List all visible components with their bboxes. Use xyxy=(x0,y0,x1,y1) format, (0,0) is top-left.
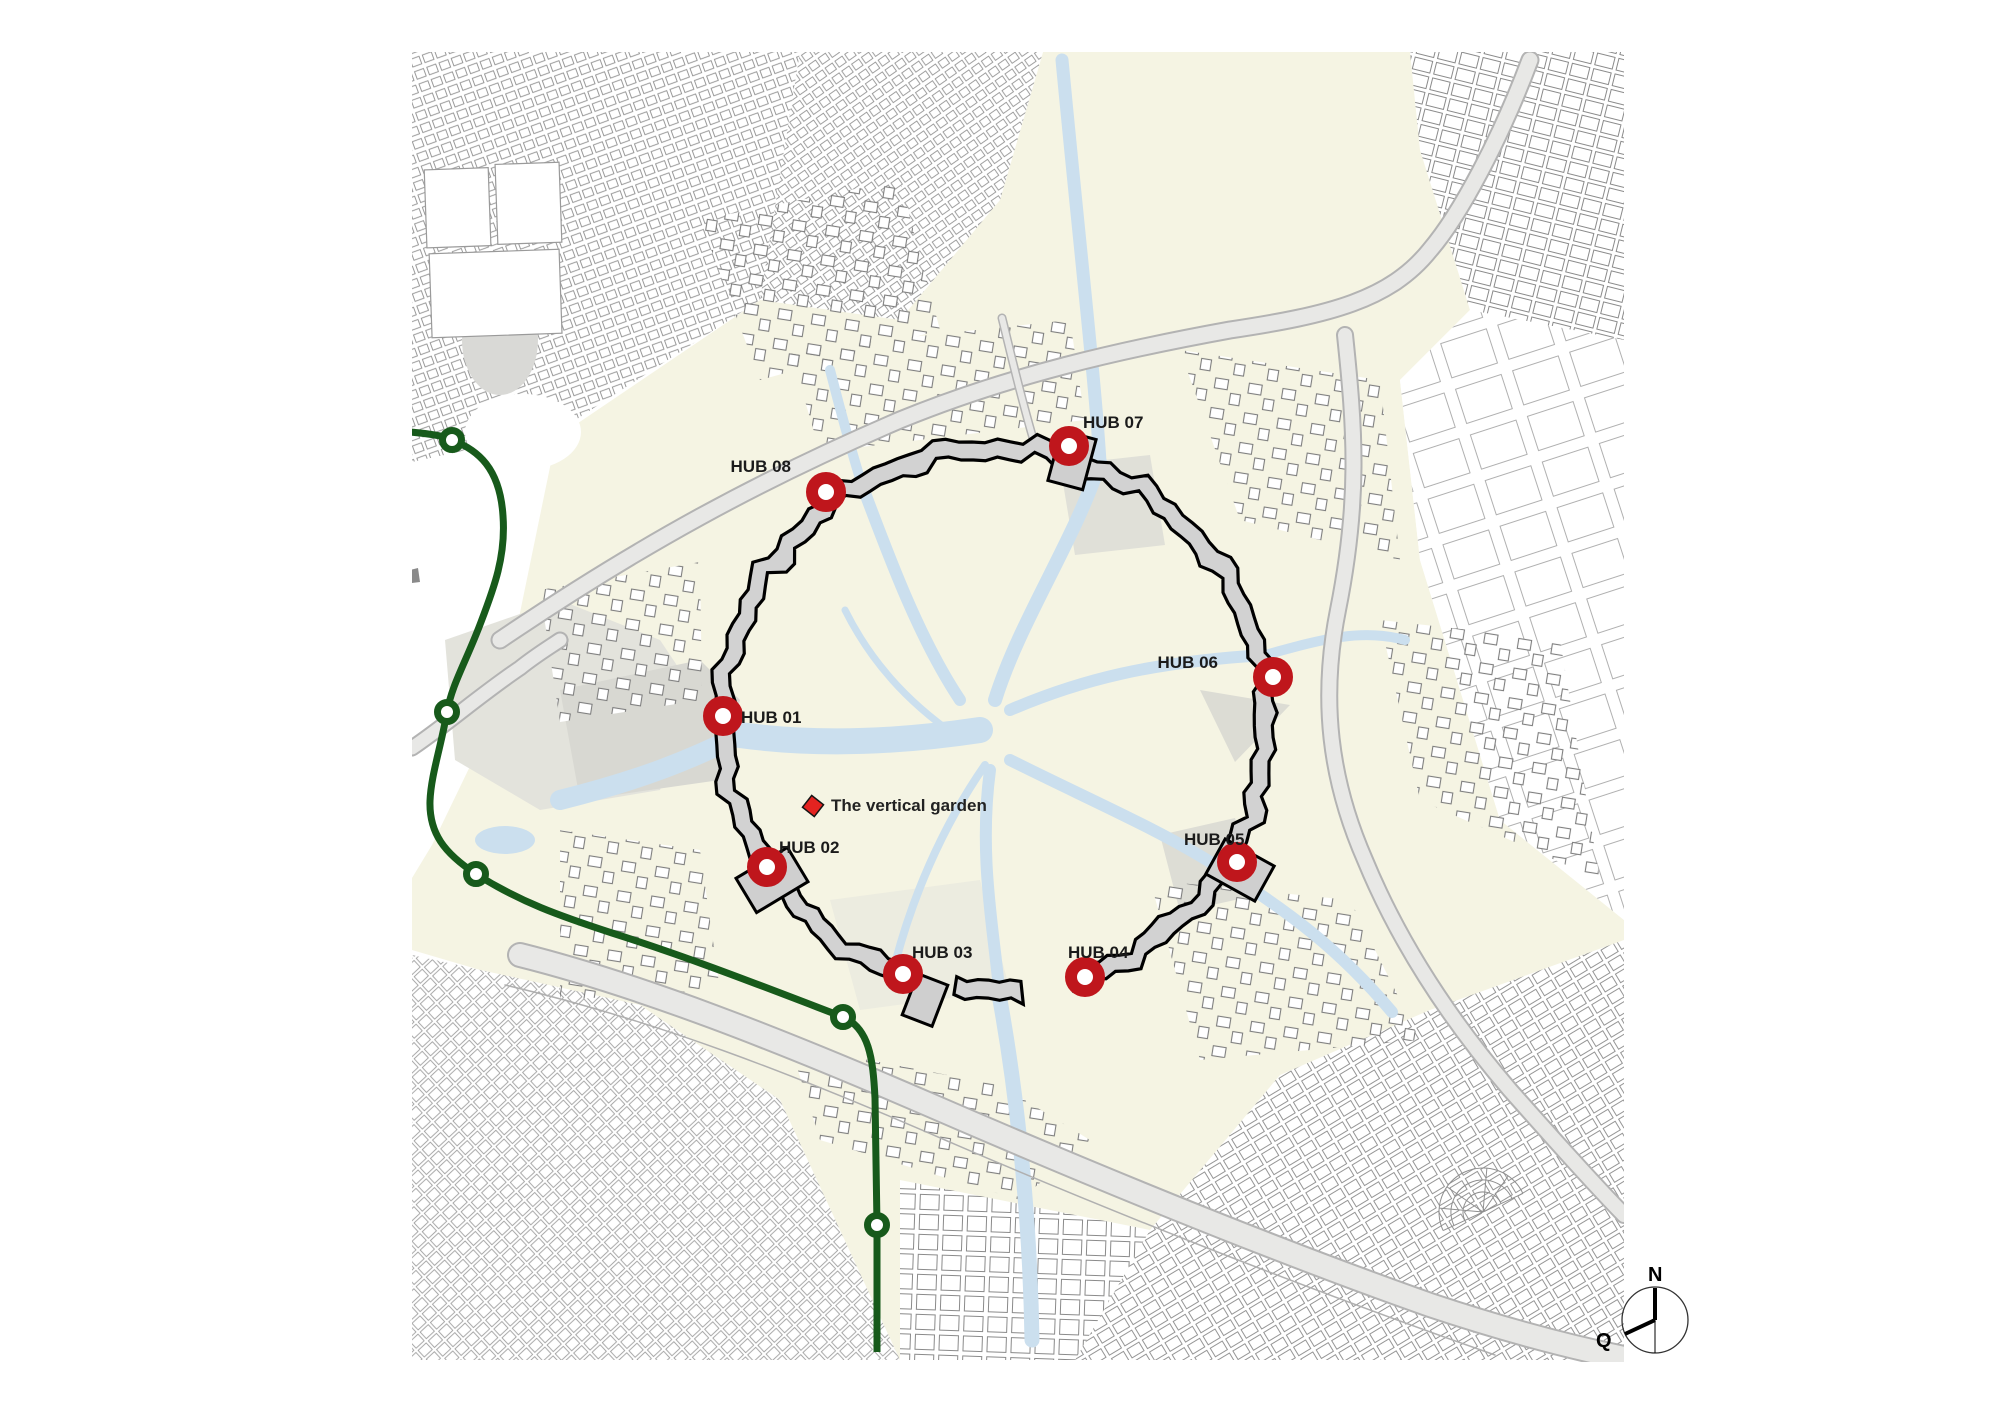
transit-node xyxy=(834,1008,853,1027)
vertical-garden-label: The vertical garden xyxy=(831,796,987,815)
vertical-garden-marker[interactable]: The vertical garden xyxy=(802,795,986,816)
hub-label: HUB 05 xyxy=(1184,830,1244,849)
transit-node xyxy=(467,865,486,884)
transit-node xyxy=(438,703,457,722)
hub-label: HUB 07 xyxy=(1083,413,1143,432)
hub-label: HUB 06 xyxy=(1158,653,1218,672)
hub-label: HUB 04 xyxy=(1068,943,1129,962)
site-plan-page: The vertical garden HUB 01 HUB 02 HUB 03… xyxy=(0,0,2000,1427)
compass-north-label: N xyxy=(1648,1264,1662,1286)
compass-west-label: Q xyxy=(1596,1330,1612,1352)
map-glyph xyxy=(398,545,420,584)
hub-label: HUB 01 xyxy=(741,708,801,727)
site-plan-map: The vertical garden HUB 01 HUB 02 HUB 03… xyxy=(0,0,2000,1427)
transit-node xyxy=(868,1216,887,1235)
hub-label: HUB 08 xyxy=(731,457,791,476)
transit-node xyxy=(443,431,462,450)
hub-label: HUB 02 xyxy=(779,838,839,857)
hub-label: HUB 03 xyxy=(912,943,972,962)
